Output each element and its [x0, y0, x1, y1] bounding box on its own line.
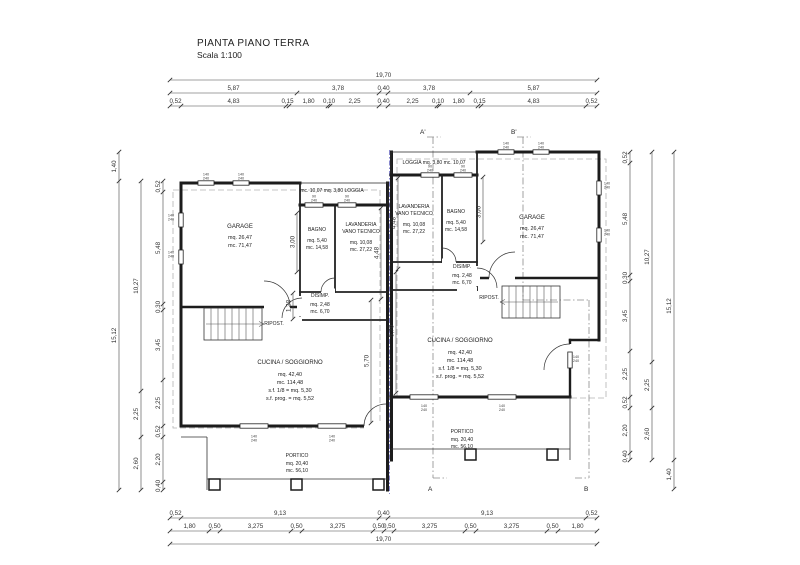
dim-label: 1,80 — [183, 523, 196, 530]
dim-label: 3,78 — [423, 85, 436, 92]
room-label-ripost-right: RIPOST. — [479, 295, 498, 301]
window-tag: 240 — [604, 186, 610, 190]
floor-plan-canvas: PIANTA PIANO TERRA Scala 1:100 19,70 5,8… — [0, 0, 800, 565]
dim-label: 1,40 — [666, 468, 673, 481]
dim-label: 3,275 — [330, 523, 346, 530]
room-label-cucina-left: CUCINA / SOGGIORNO — [257, 360, 323, 366]
dim-label: 3,275 — [422, 523, 438, 530]
room-label-garage-right: GARAGE — [519, 215, 545, 221]
window — [498, 150, 514, 154]
section-marker-a-bottom: A — [428, 486, 433, 493]
room-label-bagno-left: BAGNO — [308, 227, 326, 233]
window — [338, 203, 356, 207]
dim-label: 0,52 — [169, 510, 182, 517]
dim-label: 4,83 — [527, 98, 540, 105]
dim-label: 15,12 — [666, 298, 673, 314]
window — [454, 173, 472, 177]
dim-label: 5,87 — [227, 85, 240, 92]
dim-label: 0,52 — [155, 425, 162, 438]
dim-label: 3,275 — [504, 523, 520, 530]
room-value: mc. 6,70 — [310, 309, 329, 315]
window — [488, 395, 516, 399]
dim-label: 2,60 — [133, 457, 140, 470]
room-labels-right: LOGGIA mq. 3,80 mc. 10,07 GARAGE mq. 26,… — [395, 160, 545, 450]
room-value: mc. 71,47 — [520, 234, 544, 240]
room-value: mc. 27,22 — [350, 247, 372, 253]
dim-label: 2,60 — [644, 427, 651, 440]
dim-label: 2,25 — [348, 98, 361, 105]
room-value: mq. 42,40 — [278, 372, 302, 378]
dim-label: 0,40 — [377, 98, 390, 105]
room-value: mc. 114,48 — [277, 380, 303, 386]
dim-label: 0,40 — [377, 510, 390, 517]
floor-plan-page: PIANTA PIANO TERRA Scala 1:100 19,70 5,8… — [0, 0, 800, 565]
window-tag: 240 — [311, 199, 317, 203]
dim-label: 0,50 — [290, 523, 303, 530]
portico-right — [391, 397, 570, 460]
portico-pier — [209, 479, 220, 490]
room-value: mc. 114,48 — [447, 358, 473, 364]
window — [533, 150, 549, 154]
dim-label: 0,50 — [546, 523, 559, 530]
dimension-chain-top: 19,70 5,87 3,78 0,40 3,78 5,87 0,52 4,83… — [168, 72, 599, 108]
portico-pier — [373, 479, 384, 490]
dim-label: 0,30 — [155, 300, 162, 313]
section-marker-b-top: B' — [511, 129, 517, 136]
dim-label: 0,50 — [383, 523, 396, 530]
section-line-a: A' A — [420, 129, 447, 493]
dim-label: 1,80 — [571, 523, 584, 530]
room-label-lavanderia-right: LAVANDERIA — [399, 204, 431, 210]
dim-label: 0,52 — [622, 396, 629, 409]
room-value: mq. 26,47 — [228, 235, 252, 241]
room-value: mq. 5,40 — [307, 238, 327, 244]
dimension-chain-left: 1,40 15,12 10,27 2,25 2,60 0,52 5,48 0,3… — [111, 150, 165, 492]
dim-label: 1,80 — [302, 98, 315, 105]
room-label-disimp-right: DISIMP. — [453, 264, 471, 270]
room-value: mq. 20,40 — [286, 461, 308, 467]
dim-label: 0,10 — [323, 98, 336, 105]
dim-label: 10,27 — [644, 249, 651, 265]
room-value: mq. 26,47 — [520, 226, 544, 232]
room-value: mq. 2,48 — [310, 302, 330, 308]
dim-label: 15,12 — [111, 327, 118, 343]
dim-label: 5,70 — [389, 324, 396, 337]
window-tag: 240 — [238, 177, 244, 181]
room-value: mq. 5,40 — [446, 220, 466, 226]
window — [233, 181, 249, 185]
room-label-lavanderia-left: LAVANDERIA — [346, 222, 378, 228]
dim-label: 0,52 — [585, 98, 598, 105]
door-opening — [457, 287, 477, 294]
room-label-loggia-right: LOGGIA mq. 3,80 mc. 10,07 — [402, 160, 465, 166]
room-value: mc. 27,22 — [403, 229, 425, 235]
room-label-ripost-left: RIPOST. — [264, 321, 283, 327]
room-label-bagno-right: BAGNO — [447, 209, 465, 215]
window-tag: 240 — [421, 408, 427, 412]
room-value: mc. 56,10 — [286, 468, 308, 474]
window — [179, 250, 183, 264]
room-label-portico-right: PORTICO — [451, 429, 474, 435]
room-value: s.f. 1/8 = mq. 5,30 — [438, 366, 481, 372]
dim-label: 3,78 — [332, 85, 345, 92]
window-tag: 240 — [503, 146, 509, 150]
dim-label: 19,70 — [376, 72, 392, 79]
window-tag: 240 — [168, 255, 174, 259]
room-label-disimp-left: DISIMP. — [311, 293, 329, 299]
window — [318, 424, 346, 428]
dimension-chain-right: 0,52 5,48 0,30 3,45 2,25 0,52 2,20 0,40 … — [622, 150, 676, 491]
dim-label: 9,13 — [274, 510, 287, 517]
page-title: PIANTA PIANO TERRA — [197, 38, 309, 49]
room-label-garage-left: GARAGE — [227, 224, 253, 230]
window-tag: 240 — [329, 439, 335, 443]
portico-left — [181, 437, 388, 490]
dim-label: 3,00 — [476, 205, 483, 218]
dim-label: 4,48 — [374, 246, 381, 259]
dim-label: 1,80 — [452, 98, 465, 105]
scale-label: Scala 1:100 — [197, 50, 242, 60]
portico-pier — [291, 479, 302, 490]
room-value: mq. 10,08 — [403, 222, 425, 228]
window-tag: 240 — [604, 233, 610, 237]
window — [421, 173, 439, 177]
window-tag: 240 — [168, 218, 174, 222]
dim-label: 0,40 — [622, 450, 629, 463]
window-tag: 240 — [499, 408, 505, 412]
dim-label: 3,45 — [622, 309, 629, 322]
room-value: mc. 71,47 — [228, 243, 252, 249]
dim-label: 3,275 — [248, 523, 264, 530]
dim-label: 1,40 — [111, 160, 118, 173]
dim-label: 4,83 — [227, 98, 240, 105]
window — [410, 395, 438, 399]
stairs-left — [204, 308, 264, 340]
section-marker-b-bottom: B — [584, 486, 588, 493]
room-value: mq. 2,48 — [452, 273, 472, 279]
room-value: s.f. 1/8 = mq. 5,30 — [268, 388, 311, 394]
room-label: VANO TECNICO — [342, 229, 380, 235]
dim-label: 2,25 — [133, 407, 140, 420]
portico-pier — [547, 449, 558, 460]
dim-label: 4,48 — [391, 216, 398, 229]
portico-pier — [465, 449, 476, 460]
room-value: mq. 42,40 — [448, 350, 472, 356]
dim-label: 0,40 — [155, 479, 162, 492]
window — [597, 228, 601, 242]
room-labels-left: mc. 10,07 mq. 3,80 LOGGIA GARAGE mq. 26,… — [227, 188, 380, 474]
dim-label: 0,40 — [377, 85, 390, 92]
dim-label: 9,13 — [481, 510, 494, 517]
room-value: mc. 14,58 — [306, 245, 328, 251]
room-label-cucina-right: CUCINA / SOGGIORNO — [427, 338, 493, 344]
room-label-portico-left: PORTICO — [286, 453, 309, 459]
door-opening — [364, 423, 386, 430]
dim-label: 2,20 — [155, 453, 162, 466]
dim-label: 0,52 — [585, 510, 598, 517]
window — [198, 181, 214, 185]
window-tag: 240 — [427, 169, 433, 173]
window-tag: 240 — [251, 439, 257, 443]
room-label-loggia-left: mc. 10,07 mq. 3,80 LOGGIA — [300, 188, 364, 194]
dim-label: 5,87 — [527, 85, 540, 92]
room-value: mc. 6,70 — [452, 280, 471, 286]
dim-label: 0,50 — [208, 523, 221, 530]
window — [179, 213, 183, 227]
dim-label: 5,48 — [622, 212, 629, 225]
window — [568, 352, 572, 368]
dim-label: 19,70 — [376, 536, 392, 543]
dim-label: 0,10 — [432, 98, 445, 105]
window — [240, 424, 268, 428]
dim-label: 2,25 — [155, 396, 162, 409]
dimension-chain-bottom: 0,52 9,13 0,40 9,13 0,52 1,80 0,50 3,275… — [168, 510, 599, 546]
window — [305, 203, 323, 207]
room-value: mc. 56,10 — [451, 444, 473, 450]
door-arc — [544, 344, 570, 370]
dim-label: 5,70 — [364, 354, 371, 367]
section-marker-a-top: A' — [420, 129, 426, 136]
dim-label: 2,25 — [406, 98, 419, 105]
dim-label: 0,30 — [622, 271, 629, 284]
stairs-right — [500, 286, 560, 318]
dim-label: 0,52 — [622, 151, 629, 164]
window-tag: 240 — [203, 177, 209, 181]
dim-label: 10,27 — [133, 278, 140, 294]
dim-label: 5,48 — [155, 241, 162, 254]
dim-label: 0,52 — [155, 180, 162, 193]
dim-label: 0,50 — [464, 523, 477, 530]
room-value: s.f. prog. = mq. 5,52 — [436, 374, 484, 380]
dim-label: 0,52 — [169, 98, 182, 105]
window-tag: 240 — [344, 199, 350, 203]
door-arc — [489, 252, 515, 278]
room-value: s.f. prog. = mq. 5,52 — [266, 396, 314, 402]
window — [597, 181, 601, 195]
room-label: VANO TECNICO — [395, 211, 433, 217]
room-value: mc. 14,58 — [445, 227, 467, 233]
window-tag: 240 — [573, 359, 579, 363]
window-tag: 240 — [460, 169, 466, 173]
door-opening — [297, 296, 303, 316]
dim-label: 3,45 — [155, 338, 162, 351]
dim-label: 2,25 — [622, 367, 629, 380]
dim-label: 1,38 — [286, 299, 293, 312]
window-tag: 240 — [538, 146, 544, 150]
dim-label: 2,20 — [622, 424, 629, 437]
room-value: mq. 10,08 — [350, 240, 372, 246]
door-opening — [474, 266, 480, 286]
dim-label: 3,00 — [290, 235, 297, 248]
room-value: mq. 20,40 — [451, 437, 473, 443]
dim-label: 2,25 — [644, 378, 651, 391]
